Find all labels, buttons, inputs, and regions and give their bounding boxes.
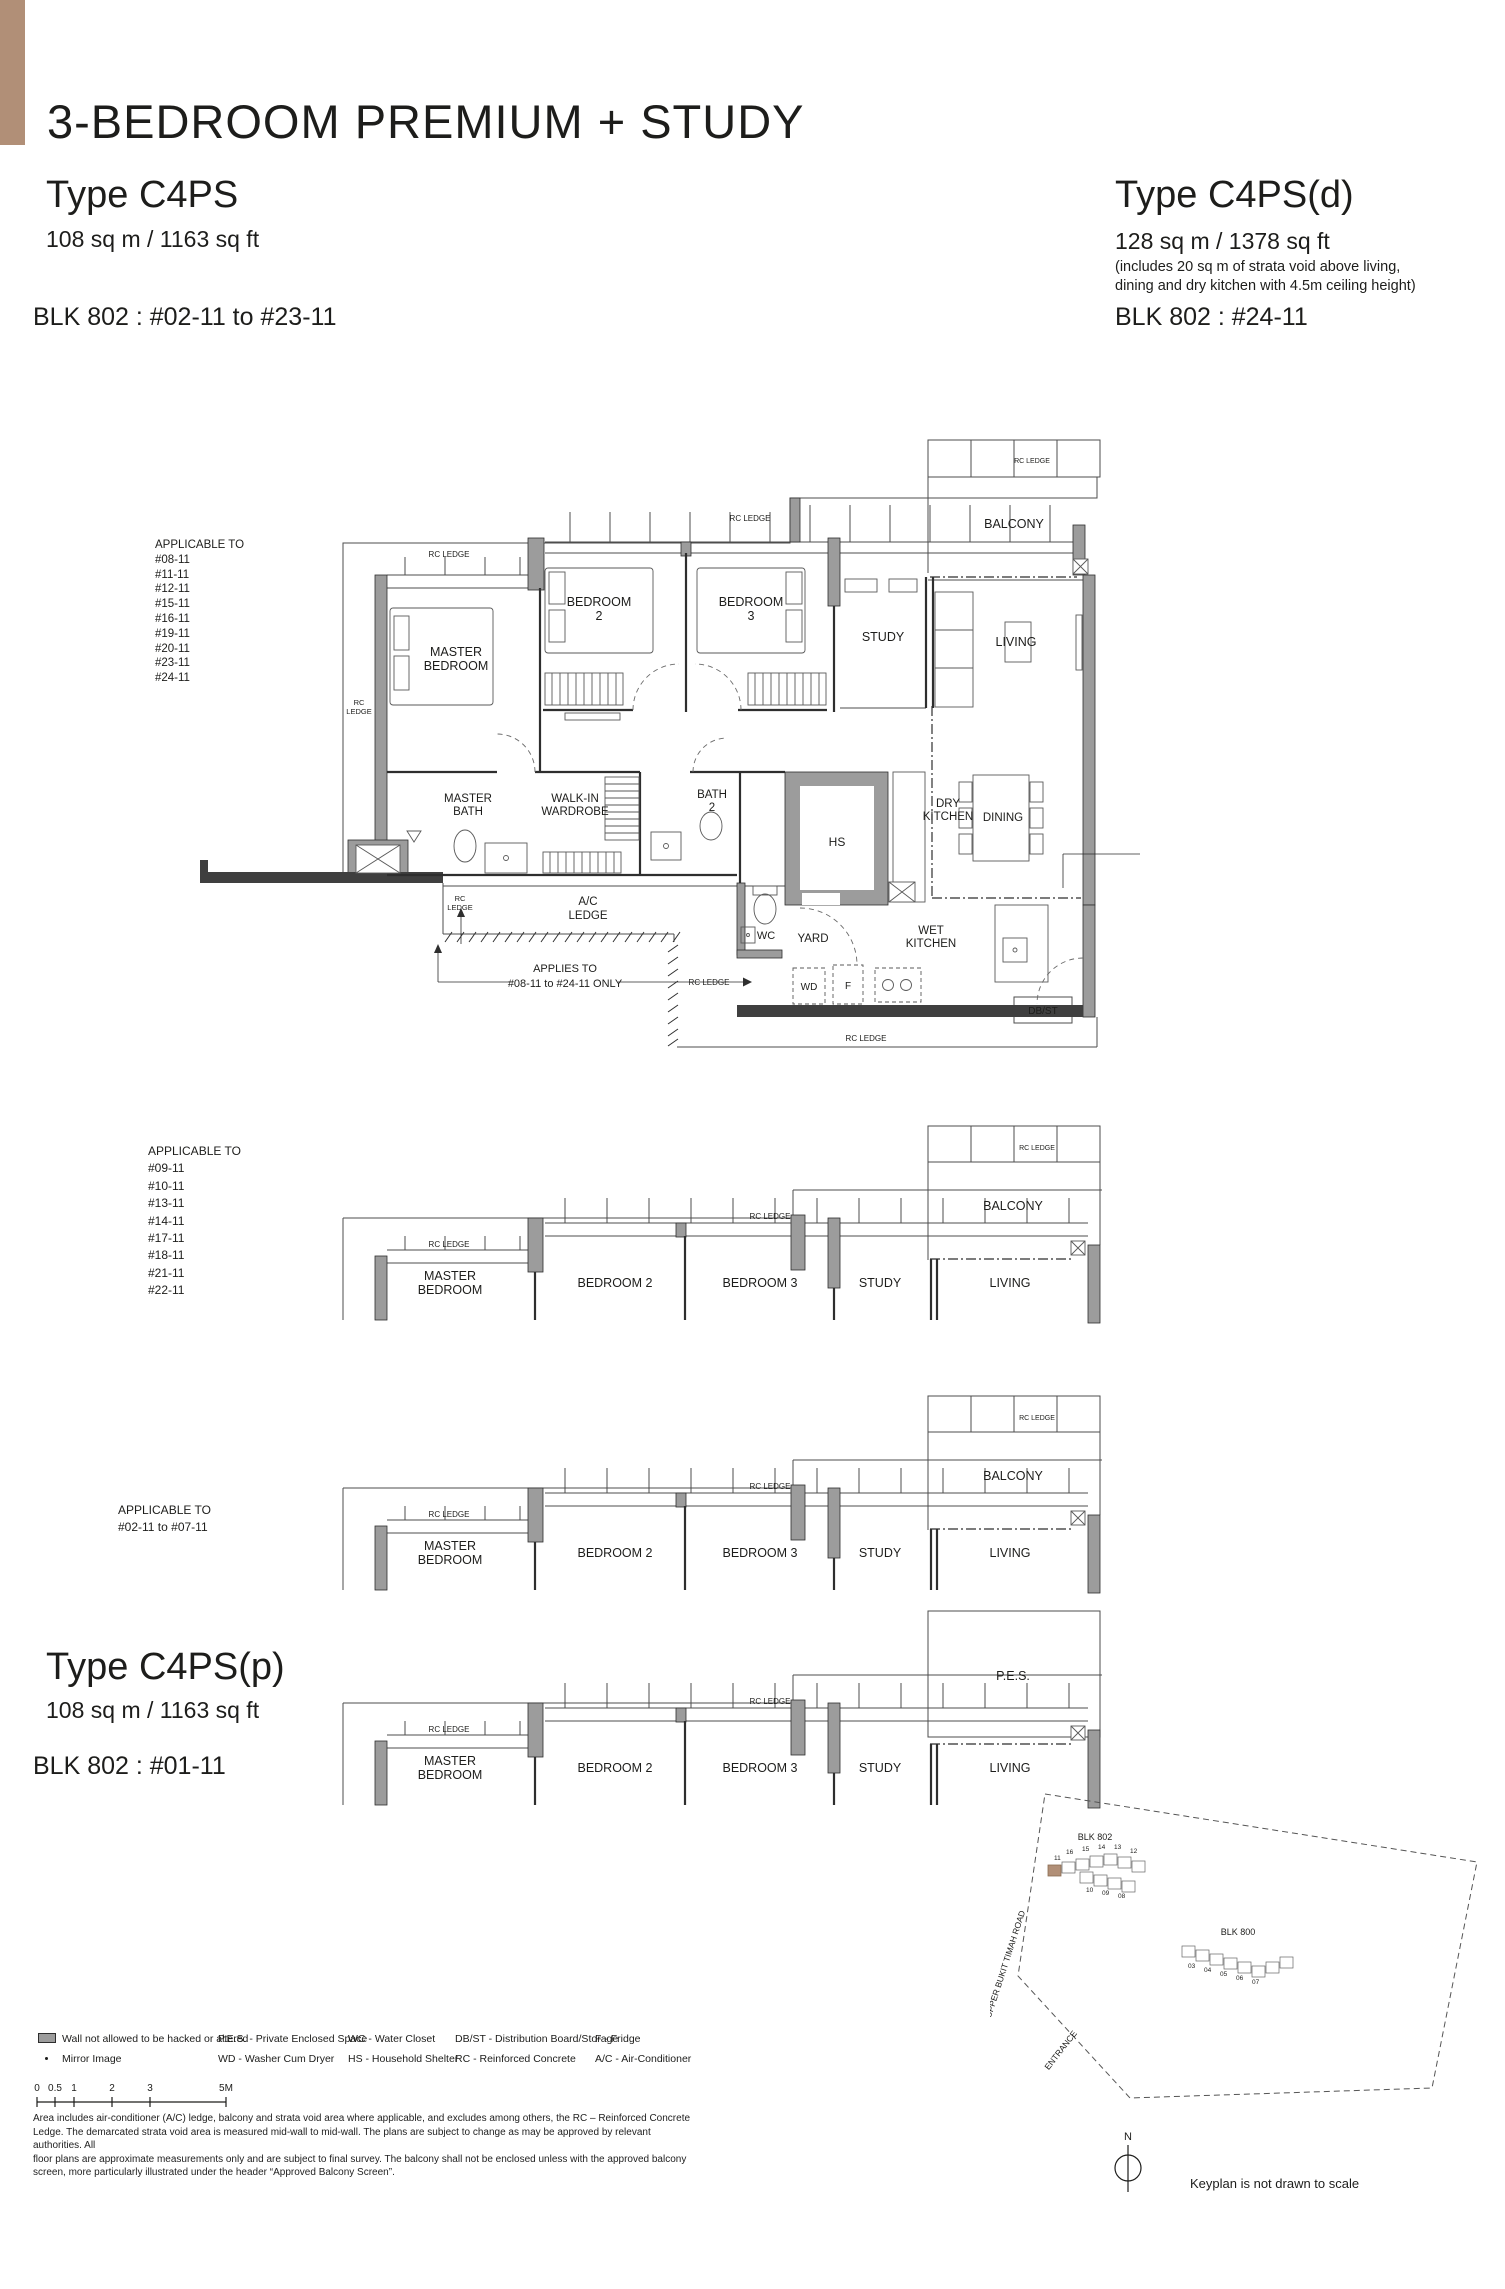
- unit-number: 05: [1220, 1971, 1228, 1978]
- rc-ledge-label: RC LEDGE: [1019, 1415, 1055, 1422]
- hs-door-gap: [802, 893, 840, 905]
- type-c4ps-block: BLK 802 : #02-11 to #23-11: [33, 303, 336, 332]
- rc-ledge-label: RC LEDGE: [429, 1510, 470, 1519]
- plan-d-duct: [1071, 1726, 1085, 1740]
- tv-console: [1076, 615, 1082, 670]
- legend-wc: WC - Water Closet: [348, 2033, 435, 2045]
- type-c4psd-note: (includes 20 sq m of strata void above l…: [1115, 258, 1416, 295]
- hs-label: HS: [829, 835, 846, 849]
- blk800-buildings: [1182, 1946, 1293, 1977]
- bedroom2-label: BEDROOM 2: [577, 1276, 652, 1290]
- unit-number: 14: [1098, 1844, 1106, 1851]
- legend-f: F - Fridge: [595, 2033, 641, 2045]
- svg-text:LEDGE: LEDGE: [569, 910, 608, 922]
- type-c4psd-name: Type C4PS(d): [1115, 174, 1354, 217]
- master-bedroom-label: MASTER: [424, 1269, 476, 1283]
- f-label: F: [845, 981, 851, 992]
- legend-wd: WD - Washer Cum Dryer: [218, 2053, 334, 2065]
- keyplan: BLK 802 BLK 800 11 16 15 14 13 12 10 09 …: [990, 1780, 1500, 2210]
- wc-label: WC: [757, 930, 775, 942]
- plan-a-furniture: [356, 559, 1088, 982]
- type-c4ps-area: 108 sq m / 1163 sq ft: [46, 226, 259, 253]
- balcony-label: BALCONY: [983, 1199, 1043, 1213]
- bath2-label: BATH: [697, 789, 727, 801]
- blk800-label: BLK 800: [1221, 1927, 1256, 1937]
- walkin-wardrobe-label: WALK-IN: [551, 793, 599, 805]
- plan-a-floorplan: MASTER BEDROOM BEDROOM 2 BEDROOM 3 STUDY…: [195, 435, 1140, 1060]
- floorplan-page: 3-BEDROOM PREMIUM + STUDY Type C4PS 108 …: [0, 0, 1505, 2289]
- rc-ledge-label: RC LEDGE: [429, 550, 470, 559]
- bedroom3-label: BEDROOM 3: [722, 1761, 797, 1775]
- disclaimer-line: Ledge. The demarcated strata void area i…: [33, 2126, 693, 2153]
- disclaimer-line: Area includes air-conditioner (A/C) ledg…: [33, 2112, 693, 2126]
- master-bedroom-label: MASTER: [424, 1754, 476, 1768]
- rc-ledge-label: RC LEDGE: [750, 1482, 791, 1491]
- scale-labels: 0 0.5 1 2 3 5M: [34, 2083, 233, 2094]
- north-label: N: [1124, 2131, 1132, 2143]
- bath2-toilet: [700, 812, 722, 840]
- unit-number: 06: [1236, 1975, 1244, 1982]
- rc-ledge-label: RC LEDGE: [730, 514, 771, 523]
- svg-text:BEDROOM: BEDROOM: [424, 659, 489, 673]
- rc-ledge-label: RC LEDGE: [429, 1240, 470, 1249]
- wet-kitchen-label: WET: [918, 925, 944, 937]
- svg-text:BEDROOM: BEDROOM: [418, 1553, 483, 1567]
- legend-rc: RC - Reinforced Concrete: [455, 2053, 576, 2065]
- wd-label: WD: [801, 982, 818, 993]
- wall-symbol: [38, 2033, 56, 2043]
- study-label: STUDY: [859, 1276, 902, 1290]
- svg-text:KITCHEN: KITCHEN: [906, 938, 956, 950]
- unit-number: 12: [1130, 1848, 1138, 1855]
- unit-number: 11: [1054, 1855, 1061, 1862]
- plan-c-gray-walls: [375, 1485, 1100, 1593]
- sofa: [935, 592, 973, 707]
- shower-symbol: [407, 831, 421, 842]
- blk802-label: BLK 802: [1078, 1832, 1113, 1842]
- svg-text:0: 0: [34, 2083, 40, 2094]
- study-label: STUDY: [859, 1546, 902, 1560]
- plan-c-floorplan: RC LEDGE RC LEDGE RC LEDGE BALCONY MASTE…: [195, 1390, 1140, 1605]
- master-bath-basin: [454, 830, 476, 862]
- unit-number: 10: [1086, 1887, 1094, 1894]
- svg-text:LEDGE: LEDGE: [447, 903, 472, 912]
- rc-ledge-label: RC LEDGE: [846, 1034, 887, 1043]
- study-label: STUDY: [859, 1761, 902, 1775]
- type-c4psd-note-line2: dining and dry kitchen with 4.5m ceiling…: [1115, 277, 1416, 296]
- plan-b-floorplan: RC LEDGE RC LEDGE RC LEDGE BALCONY MASTE…: [195, 1120, 1140, 1335]
- svg-text:BATH: BATH: [453, 806, 483, 818]
- legend-mirror: Mirror Image: [62, 2053, 122, 2065]
- disclaimer: Area includes air-conditioner (A/C) ledg…: [33, 2112, 693, 2180]
- keyplan-note: Keyplan is not drawn to scale: [1190, 2176, 1359, 2191]
- balcony-label: BALCONY: [984, 517, 1044, 531]
- bedroom2-label: BEDROOM 2: [577, 1761, 652, 1775]
- unit-number: 16: [1066, 1849, 1074, 1856]
- svg-text:3: 3: [748, 609, 755, 623]
- plan-b-duct: [1071, 1241, 1085, 1255]
- yard-label: YARD: [797, 933, 828, 945]
- living-label: LIVING: [990, 1546, 1031, 1560]
- bedroom3-label: BEDROOM: [719, 595, 784, 609]
- strata-void-boundary: [930, 577, 1081, 898]
- disclaimer-line: floor plans are approximate measurements…: [33, 2153, 693, 2167]
- unit-number: 08: [1118, 1893, 1126, 1900]
- rc-ledge-label: RC LEDGE: [750, 1697, 791, 1706]
- bath2-basin: [651, 832, 681, 860]
- blk802-buildings: [1062, 1854, 1145, 1892]
- svg-text:3: 3: [147, 2083, 153, 2094]
- scale-bar: 0 0.5 1 2 3 5M: [30, 2080, 250, 2112]
- rc-ledge-label: RC LEDGE: [1019, 1145, 1055, 1152]
- svg-text:KITCHEN: KITCHEN: [923, 811, 973, 823]
- highlighted-unit: [1048, 1865, 1061, 1876]
- north-arrow-icon: [1115, 2145, 1141, 2192]
- master-bedroom-label: MASTER: [424, 1539, 476, 1553]
- bedroom2-label: BEDROOM: [567, 595, 632, 609]
- ac-ledge-label: A/C: [578, 896, 597, 908]
- svg-text:BEDROOM: BEDROOM: [418, 1768, 483, 1782]
- dbst-label: DB/ST: [1028, 1006, 1057, 1017]
- master-bedroom-label: MASTER: [430, 645, 482, 659]
- plan-b-gray-walls: [375, 1215, 1100, 1323]
- mirror-image-symbol: [45, 2057, 48, 2060]
- legend-dbst: DB/ST - Distribution Board/Storage: [455, 2033, 618, 2045]
- living-label: LIVING: [990, 1276, 1031, 1290]
- type-c4psd-area: 128 sq m / 1378 sq ft: [1115, 228, 1330, 255]
- unit-number: 09: [1102, 1890, 1110, 1897]
- plan-c-labels: RC LEDGE RC LEDGE RC LEDGE BALCONY MASTE…: [418, 1415, 1056, 1567]
- unit-number: 03: [1188, 1963, 1196, 1970]
- unit-number: 15: [1082, 1846, 1090, 1853]
- type-c4psd-note-line1: (includes 20 sq m of strata void above l…: [1115, 258, 1416, 277]
- scale-line: [37, 2097, 226, 2107]
- page-title: 3-BEDROOM PREMIUM + STUDY: [47, 94, 805, 149]
- dry-kitchen-label: DRY: [936, 798, 960, 810]
- plan-a-labels: MASTER BEDROOM BEDROOM 2 BEDROOM 3 STUDY…: [346, 458, 1057, 1043]
- plan-a-gray-walls: [348, 498, 1095, 1017]
- unit-number: 07: [1252, 1979, 1260, 1986]
- bedroom3-label: BEDROOM 3: [722, 1546, 797, 1560]
- rc-ledge-label: RC LEDGE: [429, 1725, 470, 1734]
- svg-text:5M: 5M: [219, 2083, 233, 2094]
- master-bath-label: MASTER: [444, 793, 492, 805]
- keyplan-texts: BLK 802 BLK 800 11 16 15 14 13 12 10 09 …: [990, 1832, 1260, 2143]
- plan-c-duct: [1071, 1511, 1085, 1525]
- legend-ac: A/C - Air-Conditioner: [595, 2053, 691, 2065]
- hob-box: [875, 968, 921, 1002]
- legend-hs: HS - Household Shelter: [348, 2053, 458, 2065]
- rc-ledge-label: RC LEDGE: [689, 978, 730, 987]
- svg-text:WARDROBE: WARDROBE: [541, 806, 609, 818]
- dining-label: DINING: [983, 812, 1023, 824]
- walkin-wardrobe-unit: [605, 777, 639, 840]
- svg-text:1: 1: [71, 2083, 77, 2094]
- bedroom2-label: BEDROOM 2: [577, 1546, 652, 1560]
- entrance-label: ENTRANCE: [1042, 2028, 1079, 2071]
- road-label: UPPER BUKIT TIMAH ROAD: [990, 1909, 1027, 2019]
- living-label: LIVING: [990, 1761, 1031, 1775]
- rc-ledge-label: RC: [354, 698, 365, 707]
- legend-pes: P.E.S. - Private Enclosed Space: [218, 2033, 367, 2045]
- accent-bar: [0, 0, 25, 145]
- type-c4ps-name: Type C4PS: [46, 174, 238, 217]
- plan-b-labels: RC LEDGE RC LEDGE RC LEDGE BALCONY MASTE…: [418, 1145, 1056, 1297]
- bedroom3-label: BEDROOM 3: [722, 1276, 797, 1290]
- plan-a-outline: [343, 440, 1100, 1047]
- svg-text:2: 2: [709, 802, 715, 814]
- svg-text:BEDROOM: BEDROOM: [418, 1283, 483, 1297]
- type-c4psd-block: BLK 802 : #24-11: [1115, 303, 1308, 332]
- living-label: LIVING: [996, 635, 1037, 649]
- pes-label: P.E.S.: [996, 1669, 1030, 1683]
- svg-text:2: 2: [596, 609, 603, 623]
- plan-d-labels: RC LEDGE RC LEDGE P.E.S. MASTER BEDROOM …: [418, 1669, 1031, 1782]
- wc-toilet: [754, 894, 776, 924]
- disclaimer-line: screen, more particularly illustrated un…: [33, 2166, 693, 2180]
- unit-number: 13: [1114, 1844, 1122, 1851]
- svg-text:0.5: 0.5: [48, 2083, 62, 2094]
- unit-number: 04: [1204, 1967, 1212, 1974]
- study-label: STUDY: [862, 630, 905, 644]
- hob-rings: [883, 980, 912, 991]
- rc-ledge-label: RC LEDGE: [750, 1212, 791, 1221]
- svg-text:#08-11 to #24-11 ONLY: #08-11 to #24-11 ONLY: [508, 978, 623, 990]
- svg-text:2: 2: [109, 2083, 115, 2094]
- svg-text:LEDGE: LEDGE: [346, 707, 371, 716]
- rc-ledge-label: RC LEDGE: [1014, 458, 1050, 465]
- balcony-label: BALCONY: [983, 1469, 1043, 1483]
- rc-ledge-label: RC: [455, 894, 466, 903]
- applies-note: APPLIES TO: [533, 963, 597, 975]
